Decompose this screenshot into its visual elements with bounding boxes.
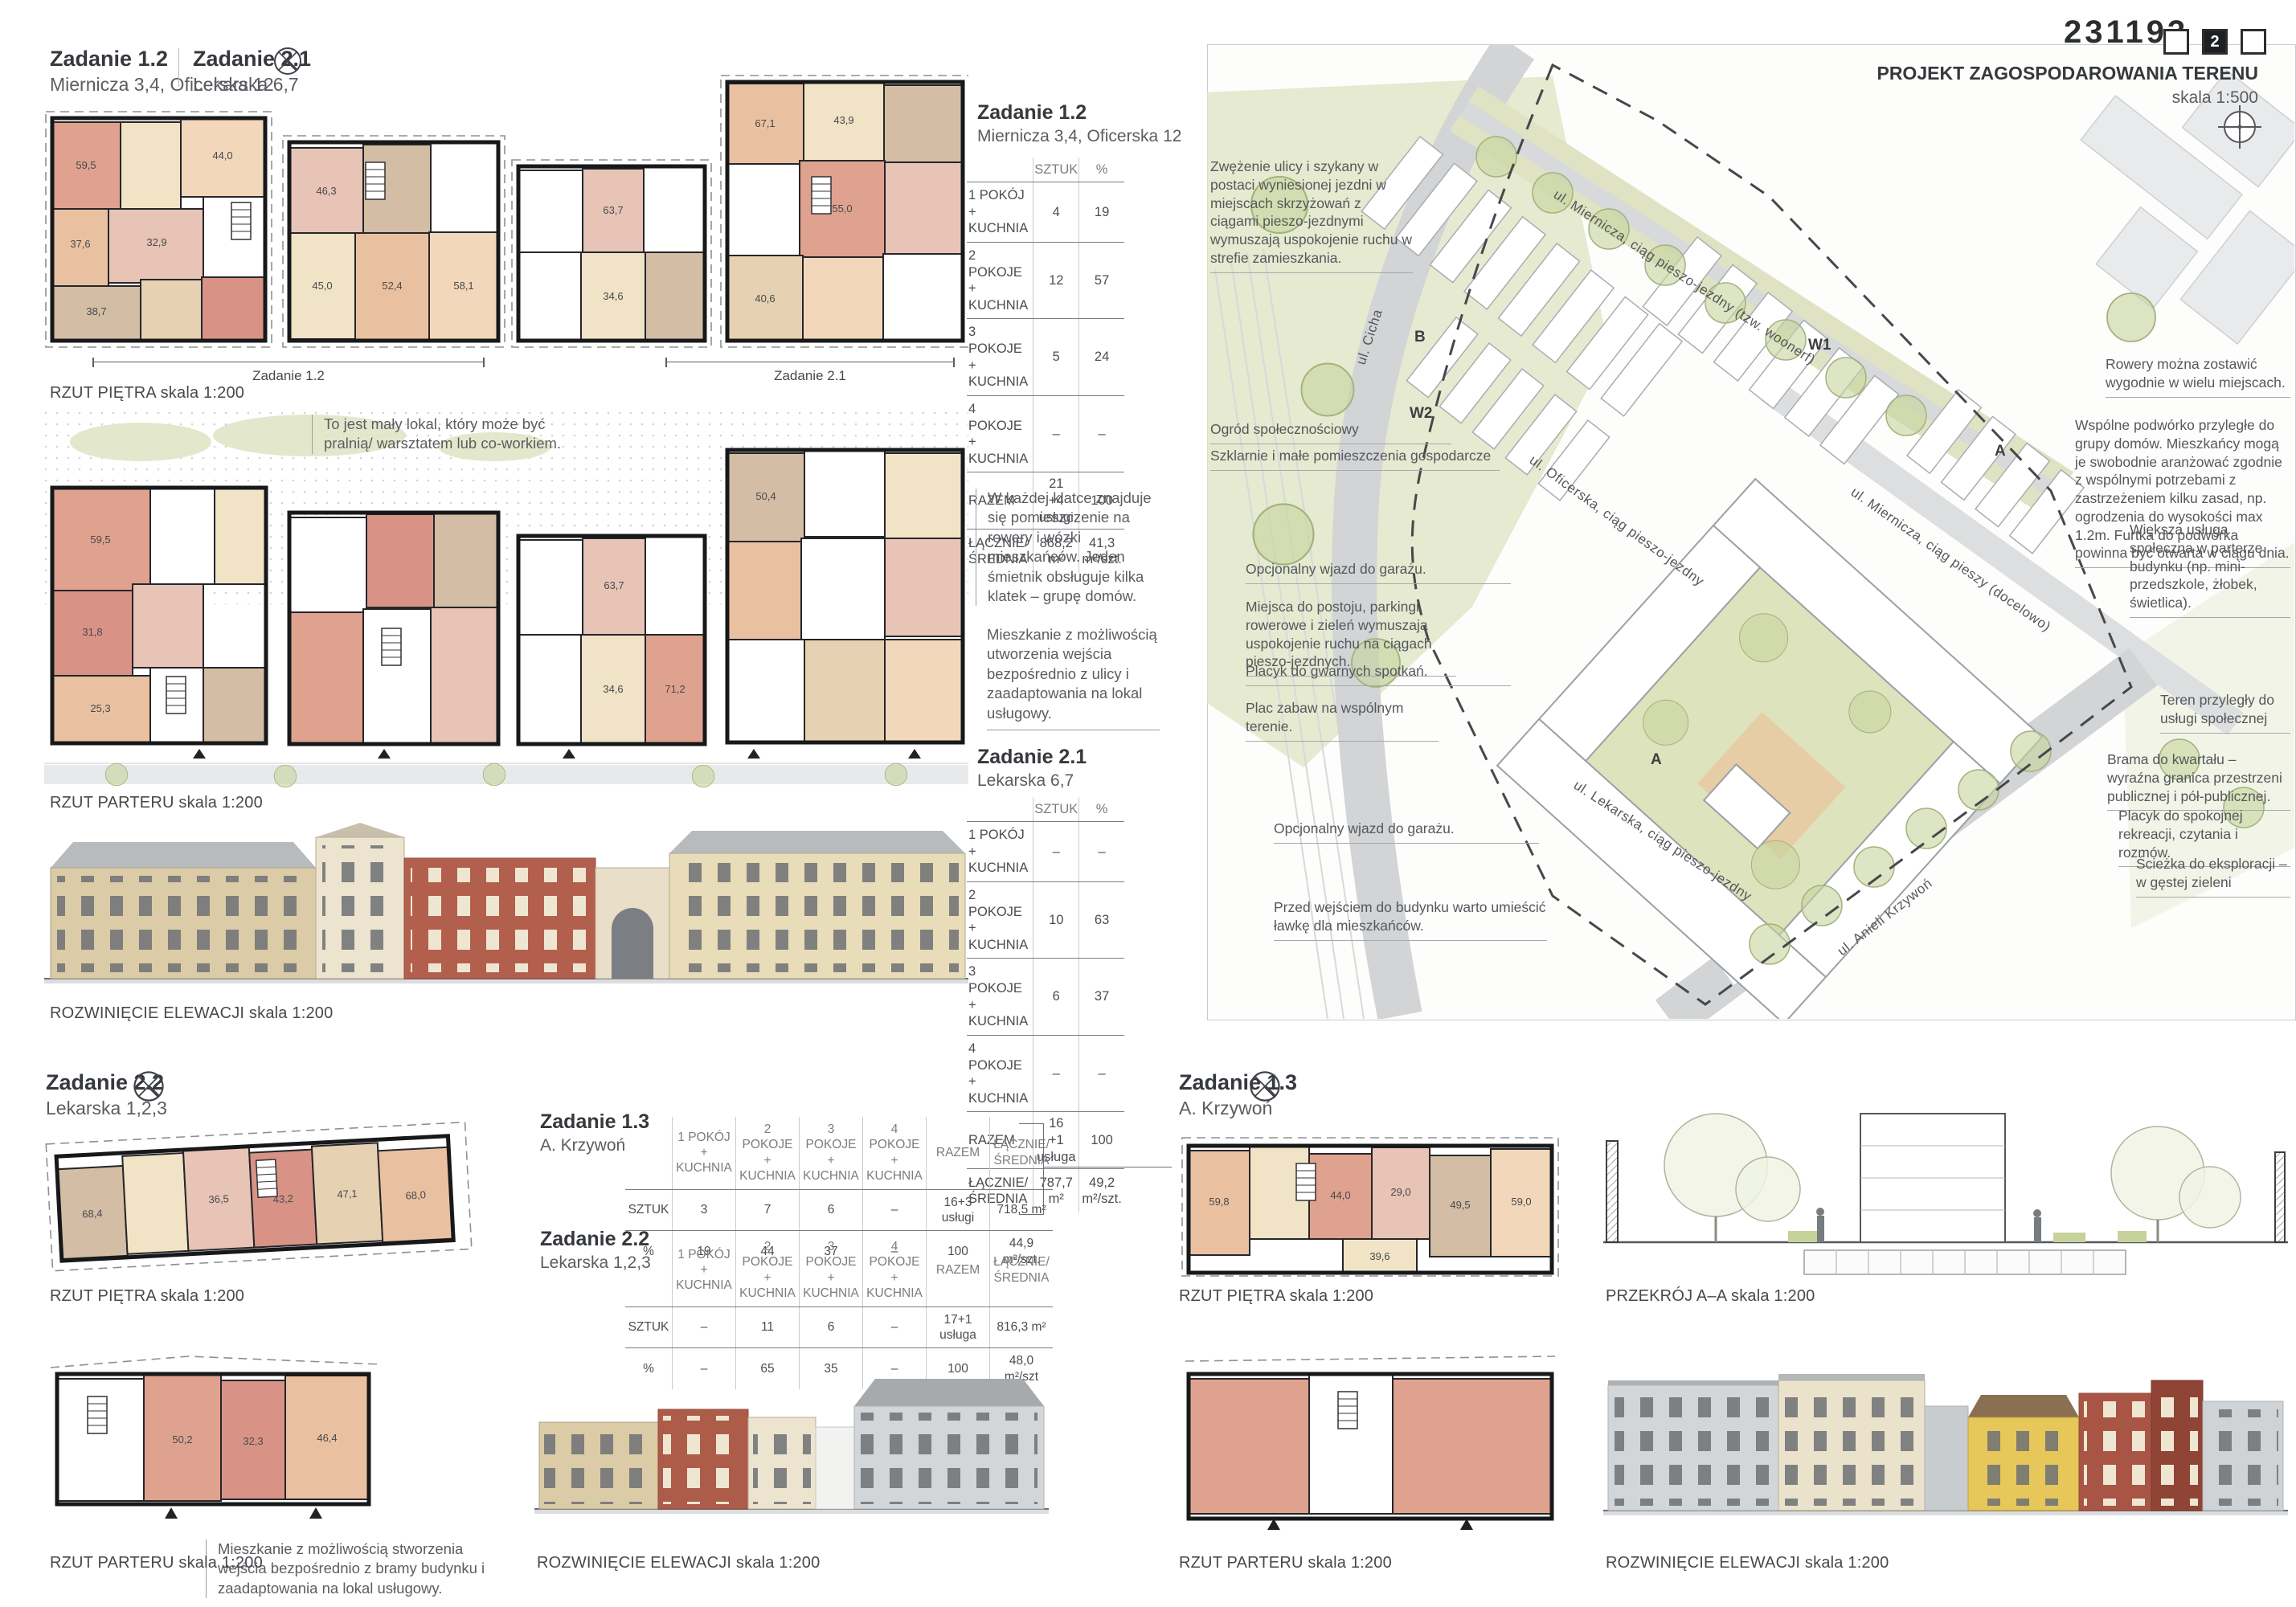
- area-label: 50,4: [755, 490, 776, 502]
- cell: –: [1078, 822, 1124, 881]
- cell: 49,2 m²/szt.: [1078, 1169, 1124, 1212]
- row-label: 1 POKÓJ + KUCHNIA: [967, 822, 1033, 881]
- note-small-local: To jest mały lokal, który może być praln…: [312, 415, 573, 454]
- col-header: %: [1078, 797, 1124, 821]
- area-label: 59,8: [1209, 1196, 1229, 1208]
- col-header: 4 POKOJE + KUCHNIA: [862, 1117, 926, 1189]
- note-staircase: W każdej klatce znajduje się pomieszczen…: [976, 489, 1152, 606]
- table-header-z12: Zadanie 1.2 Miernicza 3,4, Oficerska 12: [977, 101, 1181, 146]
- ground-cluster-a: 59,5 31,8 25,3: [52, 488, 266, 743]
- table-subtitle: Miernicza 3,4, Oficerska 12: [977, 127, 1181, 146]
- floor-plan-upper-strip: 59,5 37,6 44,0 38,7 32,9 46,3 45,0 52,4 …: [44, 74, 968, 360]
- site-note-right: Brama do kwartału – wyraźna granica prze…: [2107, 750, 2290, 811]
- site-note-left: Opcjonalny wjazd do garażu.: [1274, 820, 1539, 844]
- area-label: 59,5: [76, 159, 96, 171]
- north-icon: [1247, 1069, 1283, 1104]
- site-note-left: Plac zabaw na wspólnym terenie.: [1246, 699, 1439, 742]
- area-label: 29,0: [1390, 1186, 1410, 1198]
- site-note-left: Ogród społecznościowy: [1210, 420, 1451, 444]
- col-header: ŁĄCZNIE/ ŚREDNIA: [989, 1234, 1053, 1306]
- area-label: 44,0: [1330, 1189, 1350, 1201]
- area-label: 46,4: [317, 1432, 337, 1444]
- site-note-left: Szklarnie i małe pomieszczenia gospodarc…: [1210, 447, 1500, 471]
- caption-rzut-parteru: RZUT PARTERU skala 1:200: [50, 794, 263, 812]
- caption-rzut-parteru-z13: RZUT PARTERU skala 1:200: [1179, 1554, 1392, 1572]
- plan-cluster-d: 67,1 43,9 55,0 40,6: [721, 76, 968, 347]
- row-label: 3 POKOJE + KUCHNIA: [967, 959, 1033, 1035]
- caption-przekroj: PRZEKRÓJ A–A skala 1:200: [1606, 1287, 1815, 1306]
- table-title: Zadanie 2.1: [977, 746, 1087, 769]
- cell: 37: [1078, 959, 1124, 1035]
- area-label: 59,5: [90, 534, 110, 546]
- floor-plan-z13-parter: [1177, 1340, 1563, 1533]
- area-label: 39,6: [1369, 1250, 1389, 1262]
- marker-a: A: [1995, 443, 2006, 460]
- cell: 10: [1033, 882, 1078, 959]
- cell: –: [1078, 396, 1124, 472]
- area-label: 49,5: [1450, 1199, 1470, 1211]
- table-header-z21: Zadanie 2.1 Lekarska 6,7: [977, 746, 1087, 791]
- cell: 11: [735, 1307, 799, 1348]
- area-label: 40,6: [755, 292, 775, 305]
- col-header: SZTUK: [1033, 797, 1078, 821]
- page-box-3: [2241, 29, 2266, 55]
- table-subtitle: Lekarska 6,7: [977, 771, 1087, 791]
- floor-plan-ground-strip: 59,5 31,8 25,3 63,7 34,6 71,2: [44, 411, 968, 791]
- site-note-right: Większa usługa społeczna w parterze budy…: [2130, 521, 2290, 618]
- col-header: RAZEM: [926, 1234, 989, 1306]
- area-label: 31,8: [82, 626, 102, 638]
- site-note-left: Zwężenie ulicy i szykany w postaci wynie…: [1210, 157, 1413, 273]
- page-box-current: 2: [2202, 29, 2228, 55]
- floor-plan-z22-parter: 50,2 32,3 46,4: [44, 1340, 390, 1533]
- area-label: 50,2: [172, 1433, 192, 1445]
- cell: 24: [1078, 319, 1124, 395]
- cell: 63: [1078, 882, 1124, 959]
- caption-rzut-pietra-z22: RZUT PIĘTRA skala 1:200: [50, 1287, 244, 1306]
- cell: 816,3 m²: [989, 1307, 1053, 1348]
- table-bracket: [1019, 1123, 1044, 1215]
- cell: –: [1033, 1036, 1078, 1112]
- area-label: 43,9: [833, 114, 853, 126]
- site-plan-title: PROJEKT ZAGOSPODAROWANIA TERENU: [1848, 63, 2258, 84]
- table-title: Zadanie 1.2: [977, 101, 1181, 125]
- col-header: SZTUK: [1033, 157, 1078, 182]
- site-note-left: Przed wejściem do budynku warto umieścić…: [1274, 898, 1547, 941]
- caption-rozwiniecie-1: ROZWINIĘCIE ELEWACJI skala 1:200: [50, 1004, 333, 1023]
- area-label: 63,7: [604, 579, 624, 591]
- col-header: 3 POKOJE + KUCHNIA: [799, 1117, 862, 1189]
- cell: –: [1033, 822, 1078, 881]
- elevation-drawing-1: [44, 821, 968, 1000]
- cell: 7: [735, 1190, 799, 1231]
- plan-cluster-a: 59,5 37,6 44,0 38,7 32,9: [46, 112, 272, 347]
- north-icon: [272, 45, 304, 77]
- area-label: 71,2: [665, 683, 685, 695]
- row-label: 1 POKÓJ + KUCHNIA: [967, 182, 1033, 242]
- table-bracket-tick: [1043, 1167, 1172, 1167]
- marker-a: A: [1651, 751, 1662, 768]
- site-plan-scale: skala 1:500: [1848, 88, 2258, 108]
- area-label: 38,7: [86, 305, 106, 317]
- marker-w2: W2: [1410, 405, 1433, 422]
- row-label: 4 POKOJE + KUCHNIA: [967, 396, 1033, 472]
- col-header: %: [1078, 157, 1124, 182]
- caption-rozwiniecie-3: ROZWINIĘCIE ELEWACJI skala 1:200: [1606, 1554, 1889, 1572]
- cell: –: [672, 1307, 735, 1348]
- area-label: 47,1: [337, 1188, 358, 1200]
- site-note-left: Placyk do gwarnych spotkań.: [1246, 662, 1511, 686]
- marker-b: B: [1414, 329, 1426, 346]
- col-header: RAZEM: [926, 1117, 989, 1189]
- floor-plan-z22-pietro: 68,4 36,5 43,2 47,1 68,0: [44, 1110, 478, 1281]
- area-label: 45,0: [312, 280, 332, 292]
- area-label: 37,6: [70, 238, 90, 250]
- floor-plan-z13-pietro: 59,8 44,0 29,0 49,5 59,0 39,6: [1177, 1110, 1563, 1284]
- caption-rzut-pietra: RZUT PIĘTRA skala 1:200: [50, 384, 244, 403]
- cell: 6: [799, 1307, 862, 1348]
- col-header: 4 POKOJE + KUCHNIA: [862, 1234, 926, 1306]
- row-label: 4 POKOJE + KUCHNIA: [967, 1036, 1033, 1112]
- cell: 6: [799, 1190, 862, 1231]
- plan-cluster-c: 63,7 34,6: [512, 160, 711, 347]
- area-label: 63,7: [603, 204, 623, 216]
- caption-rzut-pietra-z13: RZUT PIĘTRA skala 1:200: [1179, 1287, 1373, 1306]
- col-header: 1 POKÓJ + KUCHNIA: [672, 1117, 735, 1189]
- dimension-label-z21: Zadanie 2.1: [665, 368, 955, 384]
- site-note-right: Teren przyległy do usługi społecznej: [2160, 691, 2290, 734]
- dimension-label-z12: Zadanie 1.2: [92, 368, 485, 384]
- marker-w1: W1: [1808, 337, 1831, 354]
- elevation-drawing-3: [1603, 1356, 2288, 1533]
- caption-rozwiniecie-2: ROZWINIĘCIE ELEWACJI skala 1:200: [537, 1554, 820, 1572]
- caption-rzut-parteru-z22: RZUT PARTERU skala 1:200: [50, 1554, 263, 1572]
- area-label: 55,0: [832, 202, 852, 215]
- area-label: 46,3: [316, 185, 336, 197]
- cell: 100: [1078, 1112, 1124, 1168]
- area-label: 32,3: [243, 1435, 263, 1447]
- north-icon: [131, 1069, 166, 1104]
- row-label: SZTUK: [625, 1307, 672, 1348]
- area-label: 58,1: [453, 280, 473, 292]
- area-label: 59,0: [1511, 1196, 1531, 1208]
- ground-cluster-c: 63,7 34,6 71,2: [518, 536, 705, 744]
- area-label: 52,4: [382, 280, 402, 292]
- cell: 57: [1078, 243, 1124, 319]
- entrance-markers: [193, 749, 921, 759]
- area-label: 68,4: [82, 1207, 103, 1220]
- area-label: 44,0: [212, 149, 232, 162]
- col-header: 2 POKOJE + KUCHNIA: [735, 1234, 799, 1306]
- cell: 5: [1033, 319, 1078, 395]
- site-note-right: Ścieżka do eksploracji – w gęstej zielen…: [2136, 855, 2290, 898]
- competition-board: Zadanie 1.2 Miernicza 3,4, Oficerska 12 …: [0, 0, 2296, 1607]
- area-label: 67,1: [755, 117, 775, 129]
- note-street-unit: Mieszkanie z możliwością utworzenia wejś…: [987, 625, 1160, 730]
- cell: –: [1078, 1036, 1124, 1112]
- elevation-drawing-2: [534, 1360, 1049, 1530]
- cell: 6: [1033, 959, 1078, 1035]
- area-label: 68,0: [405, 1188, 426, 1201]
- col-header: 3 POKOJE + KUCHNIA: [799, 1234, 862, 1306]
- cell: 4: [1033, 182, 1078, 242]
- col-header: 1 POKÓJ + KUCHNIA: [672, 1234, 735, 1306]
- ground-cluster-b: [289, 513, 498, 744]
- cell: –: [862, 1307, 926, 1348]
- row-label: 2 POKOJE + KUCHNIA: [967, 243, 1033, 319]
- cell: –: [862, 1190, 926, 1231]
- street-label: ul. Oficerska, ciąg pieszo-jezdny: [1527, 452, 1707, 589]
- col-header: 2 POKOJE + KUCHNIA: [735, 1117, 799, 1189]
- page-box-1: [2163, 29, 2189, 55]
- cell: 12: [1033, 243, 1078, 319]
- area-label: 25,3: [90, 702, 110, 714]
- area-label: 43,2: [272, 1192, 293, 1205]
- section-drawing: [1603, 1085, 2288, 1279]
- site-note-left: Opcjonalny wjazd do garażu.: [1246, 560, 1511, 584]
- cell: 19: [1078, 182, 1124, 242]
- area-label: 34,6: [603, 290, 623, 302]
- entrance-markers: [165, 1507, 322, 1519]
- cell: 16+3 usługi: [926, 1190, 989, 1231]
- cell: –: [1033, 396, 1078, 472]
- cell: 17+1 usługa: [926, 1307, 989, 1348]
- ground-cluster-d: 50,4: [727, 450, 963, 742]
- area-label: 32,9: [146, 236, 166, 248]
- area-label: 36,5: [208, 1192, 229, 1205]
- site-note-right: Rowery można zostawić wygodnie w wielu m…: [2106, 355, 2290, 398]
- row-label: 2 POKOJE + KUCHNIA: [967, 882, 1033, 959]
- plan-cluster-b: 46,3 45,0 52,4 58,1: [283, 136, 505, 347]
- row-label: SZTUK: [625, 1190, 672, 1231]
- cell: 3: [672, 1190, 735, 1231]
- row-label: 3 POKOJE + KUCHNIA: [967, 319, 1033, 395]
- area-label: 34,6: [603, 683, 623, 695]
